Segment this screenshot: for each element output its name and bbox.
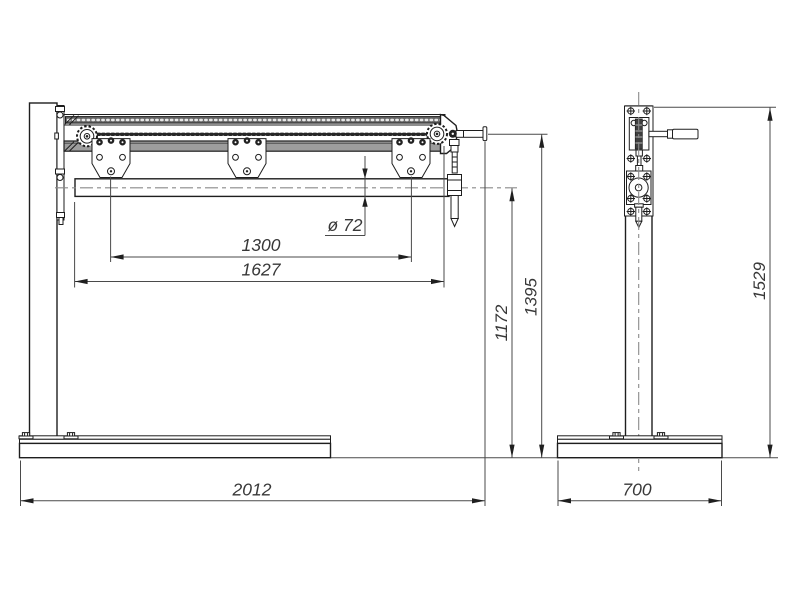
- anchor-bolt: [64, 433, 78, 439]
- tensioner-assembly: [448, 140, 462, 227]
- dim-shaft-axis-height: 1172: [492, 188, 515, 457]
- technical-drawing: 1300 1627 ø 72 2012: [0, 0, 800, 600]
- anchor-bolt: [610, 433, 624, 439]
- dim-label-1395: 1395: [522, 278, 541, 316]
- mount-plate-center: [228, 137, 266, 177]
- base-plate-front: [19, 433, 331, 458]
- dim-label-1529: 1529: [750, 262, 769, 300]
- base-plate-side: [558, 433, 723, 458]
- dim-overall-height: 1529: [654, 107, 776, 457]
- anchor-bolt: [654, 433, 668, 439]
- mount-plate-left: [92, 137, 130, 177]
- crank-handle: [649, 129, 698, 139]
- beam-assembly: [64, 115, 458, 178]
- dim-label-2012: 2012: [232, 480, 272, 500]
- dim-base-depth: 700: [558, 461, 722, 507]
- dim-label-1627: 1627: [242, 260, 282, 280]
- side-view: 1529 700: [558, 92, 777, 506]
- dim-crank-axis-height: 1395: [488, 134, 548, 457]
- dim-label-1300: 1300: [242, 235, 281, 255]
- mount-plate-right: [392, 137, 430, 177]
- dim-label-dia72: ø 72: [327, 215, 362, 235]
- drawing-sheet: 1300 1627 ø 72 2012: [0, 0, 800, 600]
- column-front: [30, 103, 65, 439]
- dim-label-700: 700: [622, 480, 651, 500]
- dim-label-1172: 1172: [492, 304, 511, 341]
